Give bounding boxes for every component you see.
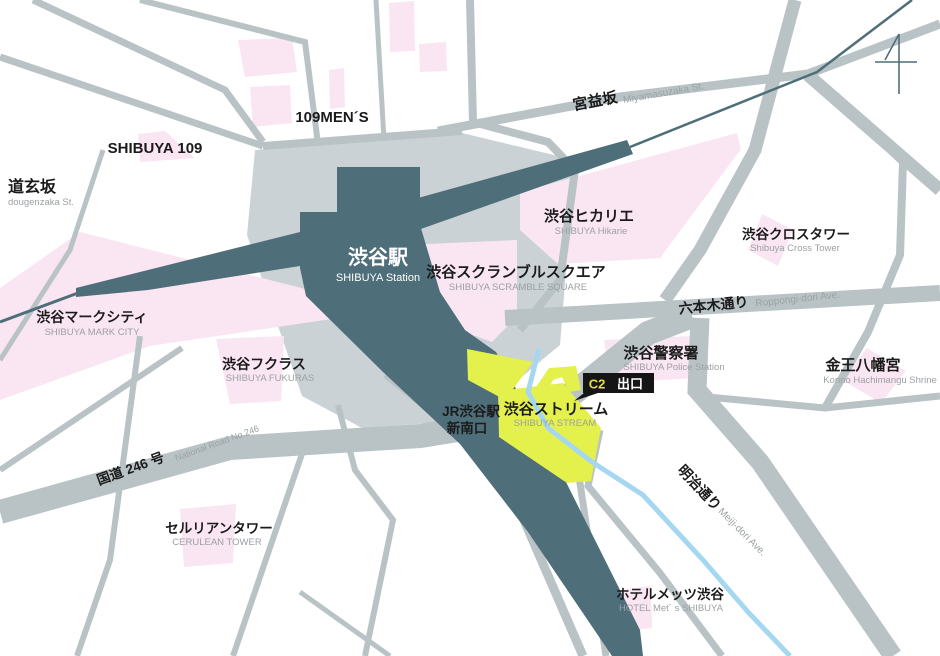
label-miyamasuzaka-en: Miyamasuzaka St.: [622, 81, 704, 106]
road: [697, 396, 940, 408]
exit-code: C2: [589, 377, 606, 392]
label-fukuras-en: SHIBUYA FUKURAS: [226, 373, 315, 384]
exit-c2-badge: C2 出口: [574, 373, 654, 401]
label-shrine-jp: 金王八幡宮: [824, 356, 900, 374]
road-miyamasuzaka: [438, 24, 940, 131]
label-dougenzaka-en: dougenzaka St.: [8, 197, 74, 208]
label-markcity-en: SHIBUYA MARK CITY: [45, 327, 141, 338]
label-fukuras-jp: 渋谷フクラス: [222, 356, 306, 372]
label-cerulean-jp: セルリアンタワー: [165, 521, 272, 536]
label-jr-new-south-line1: JR渋谷駅: [442, 403, 500, 419]
label-meiji-jp: 明治通り: [675, 462, 725, 514]
label-police-jp: 渋谷警察署: [623, 344, 698, 362]
building-unnamed-4: [389, 1, 415, 52]
label-crosstower-jp: 渋谷クロスタワー: [742, 226, 850, 242]
road: [233, 445, 305, 656]
building-unnamed-1: [238, 38, 297, 77]
building-unnamed-2: [250, 85, 292, 127]
label-jr-new-south-line2: 新南口: [447, 420, 488, 436]
building-unnamed-3: [329, 68, 345, 109]
label-crosstower-en: Shibuya Cross Tower: [750, 243, 840, 254]
label-meiji-en: Meiji-dori Ave.: [716, 506, 768, 558]
exit-label: 出口: [617, 377, 643, 392]
label-scramble-jp: 渋谷スクランブルスクエア: [426, 263, 606, 281]
label-scramble-en: SHIBUYA SCRAMBLE SQUARE: [449, 282, 587, 293]
label-109mens: 109MEN´S: [295, 109, 368, 126]
label-markcity-jp: 渋谷マークシティ: [36, 309, 147, 325]
label-shibuya-station-en: SHIBUYA Station: [336, 272, 420, 284]
label-dougenzaka-jp: 道玄坂: [8, 177, 57, 196]
label-hotelmets-en: HOTEL Met´ s SHIBUYA: [619, 603, 724, 614]
label-police-en: SHIBUYA Police Station: [623, 362, 724, 373]
label-shibuya-station-jp: 渋谷駅: [348, 245, 408, 269]
label-stream-en: SHIBUYA STREAM: [514, 418, 597, 429]
label-shrine-en: Konno Hachimangu Shrine: [823, 375, 937, 386]
road: [376, 0, 384, 140]
label-hikarie-jp: 渋谷ヒカリエ: [544, 207, 634, 225]
label-cerulean-en: CERULEAN TOWER: [172, 537, 262, 548]
label-miyamasuzaka-jp: 宮益坂: [571, 88, 620, 114]
building-unnamed-5: [419, 42, 447, 72]
shibuya-area-map: C2 出口 渋谷駅 SHIBUYA Station JR渋谷駅 新南口 道玄坂 …: [0, 0, 940, 656]
road-dougenzaka: [0, 57, 263, 146]
label-stream-jp: 渋谷ストリーム: [504, 400, 609, 418]
map-canvas: C2 出口 渋谷駅 SHIBUYA Station JR渋谷駅 新南口 道玄坂 …: [0, 0, 940, 656]
label-hotelmets-jp: ホテルメッツ渋谷: [616, 586, 724, 602]
label-shibuya109: SHIBUYA 109: [108, 140, 203, 157]
label-hikarie-en: SHIBUYA Hikarie: [555, 226, 628, 237]
